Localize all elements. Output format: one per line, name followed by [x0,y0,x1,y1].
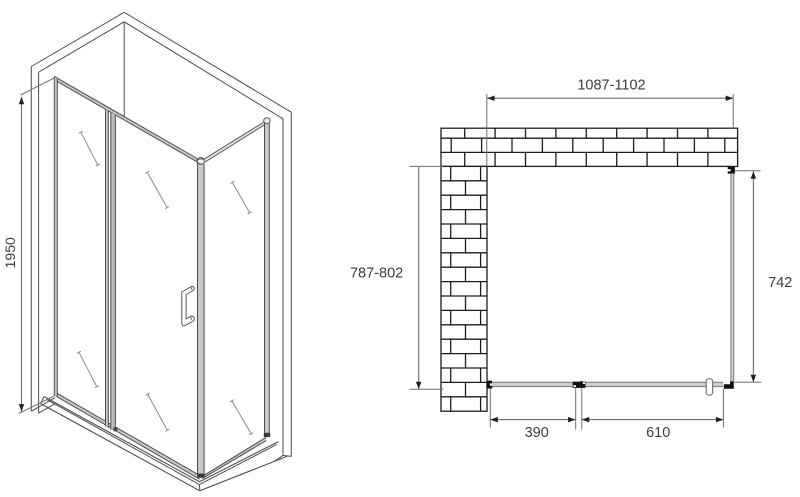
svg-text:742: 742 [768,275,792,291]
svg-text:390: 390 [525,425,549,441]
svg-text:610: 610 [646,425,670,441]
svg-text:787-802: 787-802 [350,266,403,282]
svg-text:1950: 1950 [2,237,18,268]
svg-text:1087-1102: 1087-1102 [577,77,645,93]
